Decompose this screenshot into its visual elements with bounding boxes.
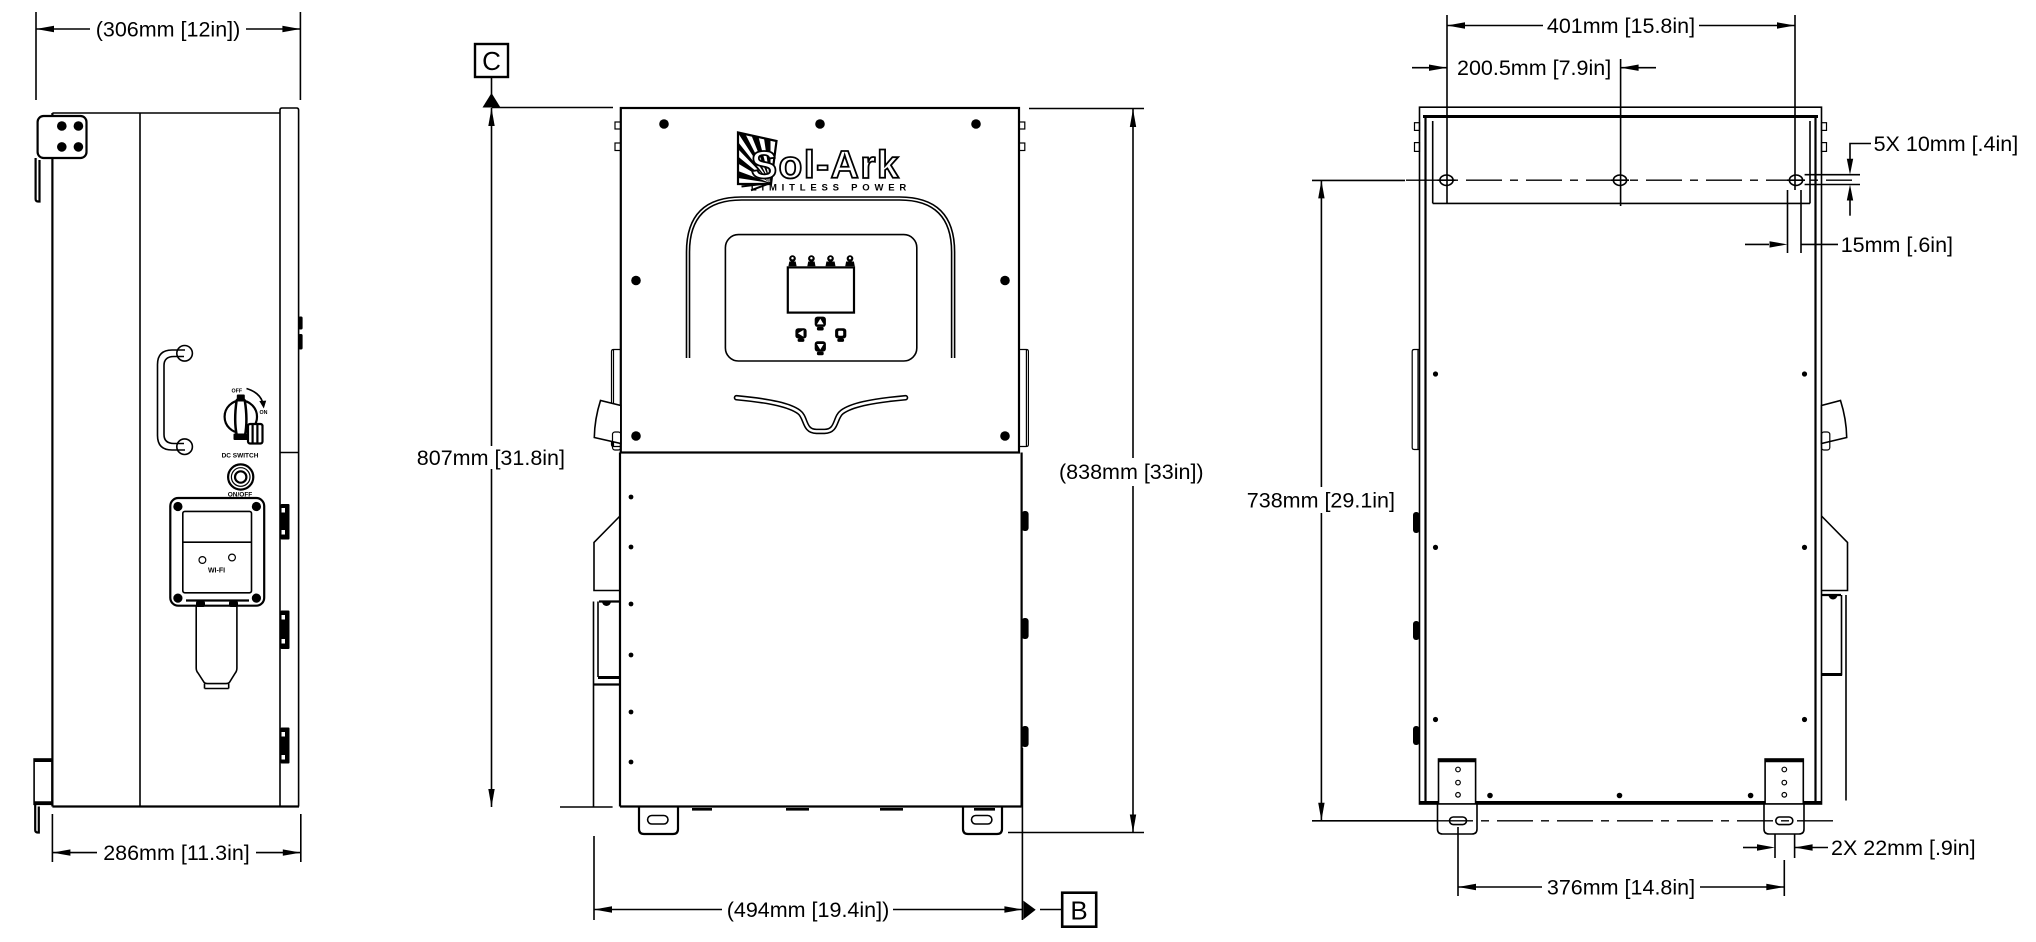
svg-text:401mm [15.8in]: 401mm [15.8in]: [1547, 14, 1695, 38]
svg-text:5X 10mm [.4in]: 5X 10mm [.4in]: [1874, 132, 2019, 156]
svg-text:738mm [29.1in]: 738mm [29.1in]: [1247, 489, 1395, 513]
svg-text:286mm [11.3in]: 286mm [11.3in]: [103, 841, 250, 865]
svg-text:LIMITLESS POWER: LIMITLESS POWER: [751, 183, 911, 194]
svg-text:15mm [.6in]: 15mm [.6in]: [1841, 233, 1953, 257]
svg-text:WI-FI: WI-FI: [208, 568, 225, 575]
svg-text:ON: ON: [260, 410, 268, 416]
svg-text:DC SWITCH: DC SWITCH: [222, 453, 259, 460]
svg-text:200.5mm [7.9in]: 200.5mm [7.9in]: [1457, 56, 1611, 80]
svg-text:(838mm [33in]): (838mm [33in]): [1059, 460, 1204, 484]
svg-text:2X 22mm [.9in]: 2X 22mm [.9in]: [1831, 836, 1976, 860]
svg-text:Sol-Ark: Sol-Ark: [751, 144, 900, 187]
svg-text:B: B: [1070, 896, 1087, 926]
svg-text:376mm [14.8in]: 376mm [14.8in]: [1547, 876, 1695, 900]
svg-text:(494mm [19.4in]): (494mm [19.4in]): [727, 898, 890, 922]
svg-text:C: C: [482, 46, 501, 76]
svg-text:OFF: OFF: [232, 389, 243, 395]
svg-text:807mm [31.8in]: 807mm [31.8in]: [417, 446, 565, 470]
svg-text:(306mm [12in]): (306mm [12in]): [96, 18, 241, 42]
